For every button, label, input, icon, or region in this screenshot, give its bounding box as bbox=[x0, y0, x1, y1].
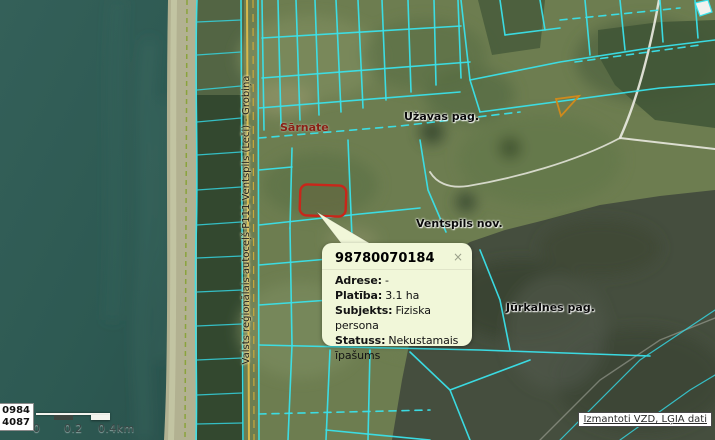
coordinate-y: 4087 bbox=[0, 417, 30, 429]
parcel-info-popup: 98780070184 × Adrese:- Platība:3.1 ha Su… bbox=[322, 243, 472, 346]
field-label: Statuss: bbox=[335, 334, 385, 347]
label-jurkalnes-pag: Jūrkalnes pag. bbox=[506, 301, 595, 314]
field-value: 3.1 ha bbox=[385, 289, 419, 302]
popup-row-platiba: Platība:3.1 ha bbox=[335, 288, 461, 303]
scale-bar-segment-dark bbox=[54, 415, 73, 420]
scale-tick-04km: 0.4km bbox=[98, 422, 135, 435]
scale-tick-02: 0.2 bbox=[64, 422, 83, 435]
attribution-box: Izmantoti VZD, LĢIA dati bbox=[578, 412, 712, 427]
scale-bar: 0 0.2 0.4km bbox=[36, 413, 156, 435]
close-icon[interactable]: × bbox=[453, 250, 463, 264]
scale-tick-0: 0 bbox=[33, 422, 40, 435]
selected-parcel-outline[interactable] bbox=[299, 184, 346, 217]
coordinate-readout: 0984 4087 bbox=[0, 403, 34, 431]
popup-row-statuss: Statuss:Nekustamais īpašums bbox=[335, 333, 461, 363]
field-label: Subjekts: bbox=[335, 304, 392, 317]
map-canvas[interactable] bbox=[0, 0, 715, 440]
field-label: Platība: bbox=[335, 289, 382, 302]
popup-title: 98780070184 bbox=[335, 251, 435, 266]
label-sarnate: Sārnate bbox=[280, 121, 329, 134]
label-ventspils-nov: Ventspils nov. bbox=[416, 217, 503, 230]
field-label: Adrese: bbox=[335, 274, 382, 287]
popup-row-subjekts: Subjekts:Fiziska persona bbox=[335, 303, 461, 333]
label-uzavas-pag: Užavas pag. bbox=[404, 110, 479, 123]
coordinate-x: 0984 bbox=[0, 405, 30, 417]
field-value: - bbox=[385, 274, 389, 287]
attribution-link[interactable]: Izmantoti VZD, LĢIA dati bbox=[583, 414, 707, 425]
scale-bar-segment-light bbox=[91, 415, 110, 420]
map-viewport[interactable]: Sārnate Užavas pag. Ventspils nov. Jūrka… bbox=[0, 0, 715, 440]
label-road-p111: Valsts reģionālais autoceļš P111 Ventspi… bbox=[241, 20, 255, 420]
popup-row-adrese: Adrese:- bbox=[335, 273, 461, 288]
